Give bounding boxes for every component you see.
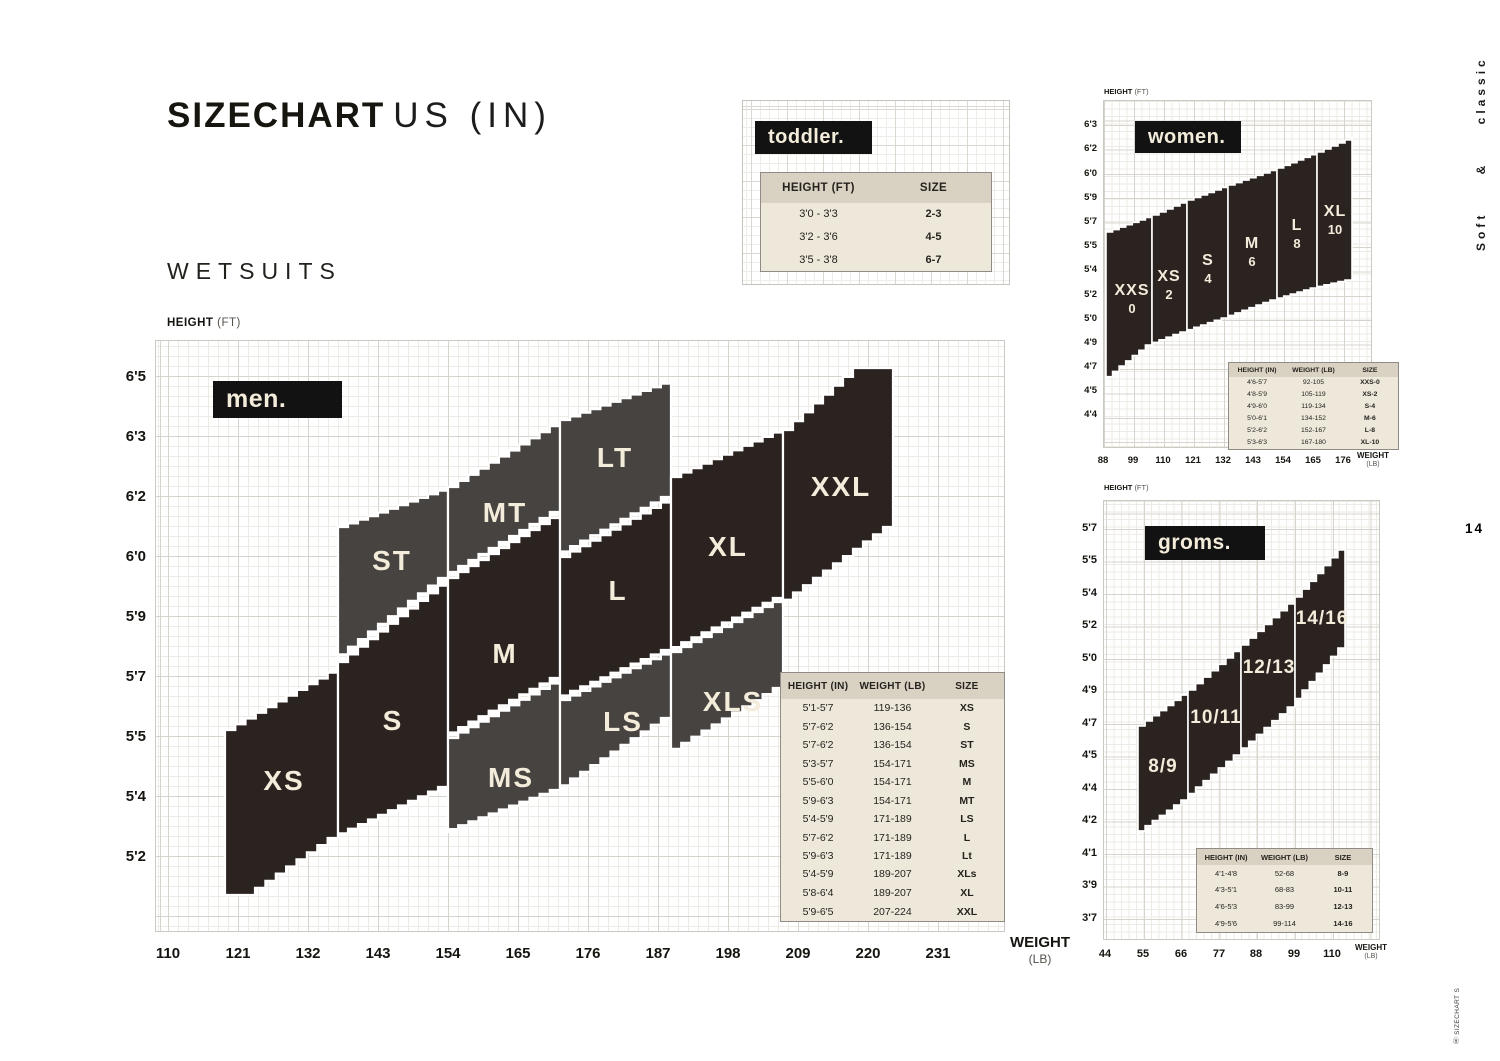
men-table-row: 5'7-6'2171-189L	[781, 828, 1005, 846]
women-column-header: WEIGHT (LB)	[1285, 363, 1342, 378]
men-table-cell: M	[930, 773, 1005, 791]
men-table-cell: ST	[930, 736, 1005, 754]
men-table-cell: XXL	[930, 902, 1005, 921]
men-y-axis-title: HEIGHT (FT)	[167, 317, 241, 329]
women-table-row: 5'3-6'3167-180XL-10	[1229, 437, 1399, 450]
men-y-tick: 5'4	[76, 788, 146, 805]
men-table-cell: 119-136	[855, 699, 930, 717]
women-y-tick: 4'7	[1027, 361, 1097, 372]
toddler-chart-label: toddler.	[755, 121, 872, 154]
toddler-table-cell: 3'5 - 3'8	[761, 248, 877, 271]
women-table-cell: 92-105	[1285, 377, 1342, 389]
men-table-cell: 136-154	[855, 736, 930, 754]
men-table-cell: 154-171	[855, 773, 930, 791]
toddler-table-cell: 3'0 - 3'3	[761, 203, 877, 226]
groms-y-tick: 4'2	[1027, 814, 1097, 826]
men-table-cell: XL	[930, 884, 1005, 902]
men-table-cell: 5'3-5'7	[781, 754, 856, 772]
women-y-axis-title: HEIGHT (FT)	[1104, 87, 1149, 96]
women-table-cell: S-4	[1342, 401, 1399, 413]
men-table-cell: 5'4-5'9	[781, 810, 856, 828]
groms-y-tick: 4'1	[1027, 847, 1097, 859]
toddler-table-row: 3'5 - 3'86-7	[761, 248, 992, 271]
toddler-size-table-wrap: HEIGHT (FT)SIZE3'0 - 3'32-33'2 - 3'64-53…	[760, 172, 992, 272]
women-y-tick: 5'9	[1027, 192, 1097, 203]
men-table-cell: 171-189	[855, 828, 930, 846]
women-table-cell: 167-180	[1285, 437, 1342, 450]
toddler-column-header: HEIGHT (FT)	[761, 173, 877, 204]
men-x-tick: 231	[925, 945, 950, 962]
groms-x-tick: 66	[1175, 948, 1187, 960]
page-title-bold: SIZECHART	[167, 96, 385, 135]
men-table-cell: L	[930, 828, 1005, 846]
men-x-tick: 132	[295, 945, 320, 962]
groms-table-row: 4'1-4'852-688-9	[1197, 865, 1373, 882]
toddler-table-row: 3'2 - 3'64-5	[761, 226, 992, 249]
groms-size-table-wrap: HEIGHT (IN)WEIGHT (LB)SIZE4'1-4'852-688-…	[1196, 848, 1373, 933]
women-x-axis-title: WEIGHT(LB)	[1357, 451, 1389, 469]
sizechart-page: SIZECHARTUS (IN) WETSUITS XSSSTMTMMSLTLL…	[0, 0, 1500, 1061]
women-table-row: 5'0-6'1134-152M-6	[1229, 413, 1399, 425]
groms-x-tick: 44	[1099, 948, 1111, 960]
men-table-cell: XS	[930, 699, 1005, 717]
groms-table-cell: 99-114	[1255, 915, 1314, 933]
men-table-cell: 189-207	[855, 865, 930, 883]
page-title-light: US (IN)	[393, 96, 552, 135]
groms-table-cell: 12-13	[1314, 898, 1373, 915]
men-table-row: 5'1-5'7119-136XS	[781, 699, 1005, 717]
men-table-row: 5'4-5'9171-189LS	[781, 810, 1005, 828]
men-x-tick: 143	[365, 945, 390, 962]
women-size-table-wrap: HEIGHT (IN)WEIGHT (LB)SIZE4'6-5'792-105X…	[1228, 362, 1399, 450]
groms-table-cell: 4'3-5'1	[1197, 882, 1256, 899]
men-table-cell: XLs	[930, 865, 1005, 883]
men-table-row: 5'7-6'2136-154ST	[781, 736, 1005, 754]
men-table-row: 5'4-5'9189-207XLs	[781, 865, 1005, 883]
women-table-row: 5'2-6'2152-167L-8	[1229, 425, 1399, 437]
men-table-row: 5'9-6'5207-224XXL	[781, 902, 1005, 921]
women-y-tick: 6'3	[1027, 119, 1097, 130]
groms-y-tick: 3'9	[1027, 879, 1097, 891]
men-x-tick: 220	[855, 945, 880, 962]
side-vertical-text: Soft & classic	[1474, 56, 1488, 251]
groms-x-tick: 110	[1323, 948, 1341, 960]
women-table-cell: 119-134	[1285, 401, 1342, 413]
men-y-tick: 6'3	[76, 428, 146, 445]
men-x-tick: 209	[785, 945, 810, 962]
men-x-tick: 154	[435, 945, 460, 962]
men-table-cell: 189-207	[855, 884, 930, 902]
women-table-cell: L-8	[1342, 425, 1399, 437]
groms-table-cell: 4'1-4'8	[1197, 865, 1256, 882]
groms-table-cell: 68-83	[1255, 882, 1314, 899]
men-table-cell: 5'8-6'4	[781, 884, 856, 902]
men-table-cell: 154-171	[855, 791, 930, 809]
toddler-table-cell: 6-7	[876, 248, 992, 271]
toddler-table: HEIGHT (FT)SIZE3'0 - 3'32-33'2 - 3'64-53…	[760, 172, 992, 272]
men-table-cell: 5'7-6'2	[781, 828, 856, 846]
women-y-tick: 4'4	[1027, 409, 1097, 420]
groms-y-tick: 4'9	[1027, 684, 1097, 696]
groms-y-tick: 4'7	[1027, 717, 1097, 729]
women-table-cell: XS-2	[1342, 389, 1399, 401]
toddler-table-cell: 2-3	[876, 203, 992, 226]
men-table: HEIGHT (IN)WEIGHT (LB)SIZE5'1-5'7119-136…	[780, 672, 1005, 922]
men-table-row: 5'5-6'0154-171M	[781, 773, 1005, 791]
women-table-cell: 5'0-6'1	[1229, 413, 1286, 425]
women-x-tick: 165	[1305, 455, 1321, 466]
men-y-tick: 5'2	[76, 848, 146, 865]
groms-table-row: 4'3-5'168-8310-11	[1197, 882, 1373, 899]
men-table-cell: 5'9-6'5	[781, 902, 856, 921]
women-x-tick: 143	[1245, 455, 1261, 466]
toddler-table-cell: 3'2 - 3'6	[761, 226, 877, 249]
men-x-axis-title: WEIGHT(LB)	[1010, 934, 1070, 966]
groms-y-tick: 4'4	[1027, 782, 1097, 794]
groms-y-tick: 5'7	[1027, 522, 1097, 534]
men-table-row: 5'9-6'3154-171MT	[781, 791, 1005, 809]
groms-x-axis-title: WEIGHT(LB)	[1355, 943, 1387, 961]
page-subtitle: WETSUITS	[167, 258, 342, 285]
women-y-tick: 5'4	[1027, 264, 1097, 275]
groms-x-tick: 88	[1250, 948, 1262, 960]
toddler-column-header: SIZE	[876, 173, 992, 204]
women-column-header: HEIGHT (IN)	[1229, 363, 1286, 378]
men-y-tick: 6'0	[76, 548, 146, 565]
women-table-cell: XXS-0	[1342, 377, 1399, 389]
men-column-header: HEIGHT (IN)	[781, 673, 856, 700]
groms-table-cell: 10-11	[1314, 882, 1373, 899]
men-table-cell: 171-189	[855, 810, 930, 828]
groms-y-tick: 5'2	[1027, 619, 1097, 631]
men-x-tick: 176	[575, 945, 600, 962]
women-x-tick: 88	[1098, 455, 1109, 466]
men-table-cell: 5'9-6'3	[781, 791, 856, 809]
men-table-cell: MS	[930, 754, 1005, 772]
men-table-cell: 136-154	[855, 717, 930, 735]
women-table-row: 4'6-5'792-105XXS-0	[1229, 377, 1399, 389]
women-y-tick: 4'9	[1027, 337, 1097, 348]
women-y-tick: 5'2	[1027, 289, 1097, 300]
women-y-tick: 5'5	[1027, 240, 1097, 251]
men-table-row: 5'7-6'2136-154S	[781, 717, 1005, 735]
men-y-tick: 5'9	[76, 608, 146, 625]
women-x-tick: 99	[1128, 455, 1139, 466]
women-x-tick: 121	[1185, 455, 1201, 466]
groms-x-tick: 99	[1288, 948, 1300, 960]
men-table-cell: 5'5-6'0	[781, 773, 856, 791]
men-table-row: 5'9-6'3171-189Lt	[781, 847, 1005, 865]
women-y-tick: 5'0	[1027, 313, 1097, 324]
groms-y-axis-title: HEIGHT (FT)	[1104, 483, 1149, 492]
groms-table-cell: 4'6-5'3	[1197, 898, 1256, 915]
groms-x-tick: 77	[1213, 948, 1225, 960]
women-column-header: SIZE	[1342, 363, 1399, 378]
women-table-cell: XL-10	[1342, 437, 1399, 450]
toddler-table-cell: 4-5	[876, 226, 992, 249]
groms-column-header: WEIGHT (LB)	[1255, 849, 1314, 866]
groms-table-cell: 4'9-5'6	[1197, 915, 1256, 933]
men-table-cell: 5'9-6'3	[781, 847, 856, 865]
men-table-cell: 154-171	[855, 754, 930, 772]
groms-table-row: 4'9-5'699-11414-16	[1197, 915, 1373, 933]
men-table-cell: 5'4-5'9	[781, 865, 856, 883]
page-title: SIZECHARTUS (IN)	[167, 96, 552, 136]
women-table: HEIGHT (IN)WEIGHT (LB)SIZE4'6-5'792-105X…	[1228, 362, 1399, 450]
women-table-cell: 4'8-5'9	[1229, 389, 1286, 401]
women-chart-label: women.	[1135, 121, 1241, 153]
footer-vertical-text: Ⓡ SIZECHART S	[1453, 962, 1463, 1044]
women-x-tick: 110	[1155, 455, 1170, 466]
women-table-cell: 5'3-6'3	[1229, 437, 1286, 450]
women-x-tick: 176	[1335, 455, 1351, 466]
men-table-cell: 5'7-6'2	[781, 717, 856, 735]
women-table-cell: 4'9-6'0	[1229, 401, 1286, 413]
groms-table-cell: 8-9	[1314, 865, 1373, 882]
women-table-cell: 4'6-5'7	[1229, 377, 1286, 389]
groms-column-header: HEIGHT (IN)	[1197, 849, 1256, 866]
men-x-tick: 110	[156, 945, 180, 962]
men-table-cell: S	[930, 717, 1005, 735]
groms-x-tick: 55	[1137, 948, 1149, 960]
women-y-tick: 4'5	[1027, 385, 1097, 396]
men-chart-label: men.	[213, 381, 342, 418]
groms-table: HEIGHT (IN)WEIGHT (LB)SIZE4'1-4'852-688-…	[1196, 848, 1373, 933]
men-table-cell: 5'7-6'2	[781, 736, 856, 754]
men-y-tick: 6'5	[76, 368, 146, 385]
men-x-tick: 165	[505, 945, 530, 962]
men-table-cell: 5'1-5'7	[781, 699, 856, 717]
men-size-table-wrap: HEIGHT (IN)WEIGHT (LB)SIZE5'1-5'7119-136…	[780, 672, 1005, 922]
groms-y-tick: 4'5	[1027, 749, 1097, 761]
men-y-tick: 5'7	[76, 668, 146, 685]
men-column-header: SIZE	[930, 673, 1005, 700]
men-x-tick: 198	[715, 945, 740, 962]
men-table-row: 5'3-5'7154-171MS	[781, 754, 1005, 772]
groms-table-row: 4'6-5'383-9912-13	[1197, 898, 1373, 915]
groms-y-tick: 5'4	[1027, 587, 1097, 599]
groms-y-tick: 3'7	[1027, 912, 1097, 924]
women-table-cell: 5'2-6'2	[1229, 425, 1286, 437]
men-table-cell: Lt	[930, 847, 1005, 865]
men-x-tick: 121	[225, 945, 250, 962]
groms-y-tick: 5'0	[1027, 652, 1097, 664]
groms-chart-label: groms.	[1145, 526, 1265, 560]
groms-table-cell: 14-16	[1314, 915, 1373, 933]
women-x-tick: 154	[1275, 455, 1291, 466]
men-column-header: WEIGHT (LB)	[855, 673, 930, 700]
groms-table-cell: 52-68	[1255, 865, 1314, 882]
women-table-row: 4'9-6'0119-134S-4	[1229, 401, 1399, 413]
men-table-cell: MT	[930, 791, 1005, 809]
men-x-tick: 187	[645, 945, 670, 962]
women-table-cell: M-6	[1342, 413, 1399, 425]
women-y-tick: 5'7	[1027, 216, 1097, 227]
men-y-tick: 5'5	[76, 728, 146, 745]
page-number: 14	[1465, 521, 1484, 536]
men-table-cell: 171-189	[855, 847, 930, 865]
women-table-cell: 134-152	[1285, 413, 1342, 425]
groms-y-tick: 5'5	[1027, 554, 1097, 566]
men-table-cell: LS	[930, 810, 1005, 828]
women-y-tick: 6'0	[1027, 168, 1097, 179]
women-table-cell: 105-119	[1285, 389, 1342, 401]
groms-column-header: SIZE	[1314, 849, 1373, 866]
women-x-tick: 132	[1215, 455, 1231, 466]
toddler-table-row: 3'0 - 3'32-3	[761, 203, 992, 226]
men-table-cell: 207-224	[855, 902, 930, 921]
women-table-row: 4'8-5'9105-119XS-2	[1229, 389, 1399, 401]
men-table-row: 5'8-6'4189-207XL	[781, 884, 1005, 902]
men-y-tick: 6'2	[76, 488, 146, 505]
groms-table-cell: 83-99	[1255, 898, 1314, 915]
women-table-cell: 152-167	[1285, 425, 1342, 437]
women-y-tick: 6'2	[1027, 143, 1097, 154]
